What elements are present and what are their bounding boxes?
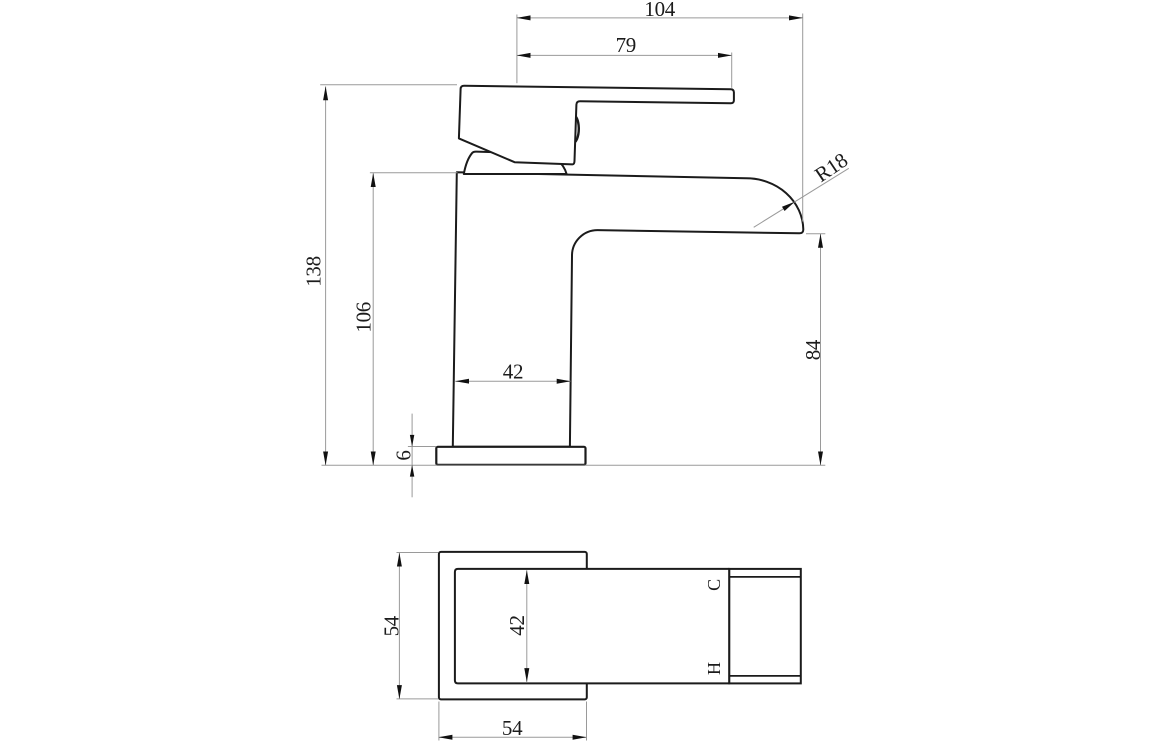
svg-text:42: 42 [505, 615, 529, 635]
svg-text:106: 106 [351, 302, 375, 333]
svg-text:79: 79 [616, 33, 636, 57]
svg-text:104: 104 [644, 0, 675, 21]
svg-text:138: 138 [302, 256, 326, 287]
svg-text:42: 42 [503, 360, 523, 384]
svg-text:54: 54 [379, 615, 403, 636]
svg-text:84: 84 [801, 339, 825, 360]
svg-text:H: H [704, 662, 724, 675]
svg-text:C: C [704, 579, 724, 591]
svg-text:6: 6 [392, 450, 416, 460]
svg-text:54: 54 [502, 716, 523, 740]
